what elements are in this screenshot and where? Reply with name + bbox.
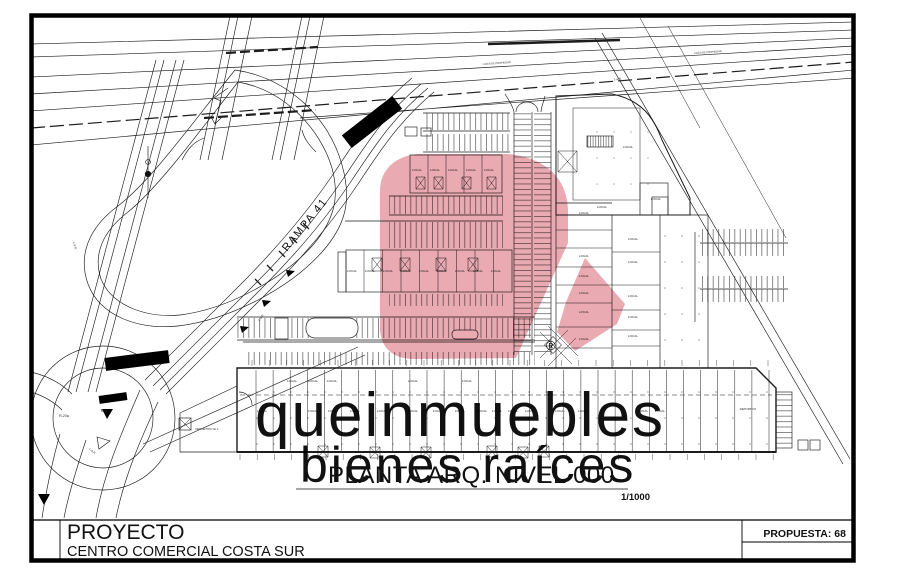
unit-labels-item: LOCAL bbox=[628, 334, 638, 338]
ramp-41-label: RAMPA 41 bbox=[280, 196, 330, 254]
project-name: CENTRO COMERCIAL COSTA SUR bbox=[67, 544, 305, 560]
unit-labels-item: LOCAL bbox=[365, 269, 375, 273]
drawing-title-group: PLANTA ARQ. NIVEL 000 1/1000 bbox=[296, 462, 650, 503]
site-plan-canvas: RAMPA 41 bbox=[0, 0, 900, 582]
watermark-registered-mark: ® bbox=[546, 338, 556, 353]
unit-labels-item: LOCAL bbox=[579, 211, 589, 215]
overpass-road bbox=[182, 16, 324, 160]
unit-labels-item: LOCAL bbox=[628, 260, 638, 264]
unit-labels-item: LOCAL bbox=[347, 269, 357, 273]
drawing-scale: 1/1000 bbox=[621, 492, 650, 503]
proposal-number: PROPUESTA: 68 bbox=[763, 528, 846, 540]
road-labels-item: L.a.R. bbox=[72, 241, 78, 250]
unit-labels-item: LOCAL bbox=[628, 294, 638, 298]
road-labels-item: R-2 bbox=[101, 408, 108, 413]
road-labels-item: L.a.R. bbox=[88, 447, 97, 455]
road-labels-item: R-20a bbox=[59, 414, 69, 418]
unit-labels-item: LOCAL bbox=[597, 205, 607, 209]
drawing-sheet: RAMPA 41 bbox=[0, 0, 900, 582]
street-symbols bbox=[145, 88, 228, 198]
unit-labels-item: LOCAL bbox=[628, 237, 638, 241]
project-label: PROYECTO bbox=[67, 521, 184, 544]
unit-labels-item: LOCAL bbox=[628, 315, 638, 319]
unit-labels-item: LOCAL bbox=[651, 197, 661, 201]
unit-labels-item: DEPORTIVO No.1 bbox=[195, 427, 219, 431]
unit-labels-item: LOCAL bbox=[623, 145, 633, 149]
unit-labels-item: DEPORTIVO bbox=[740, 407, 757, 411]
left-road bbox=[68, 60, 184, 392]
road-labels-item: LINEA DE PROPIEDAD bbox=[483, 60, 511, 66]
drawing-title: PLANTA ARQ. NIVEL 000 bbox=[328, 462, 615, 489]
title-block: PROYECTO CENTRO COMERCIAL COSTA SUR PROP… bbox=[67, 521, 846, 560]
unit-labels-item: LOCAL bbox=[579, 254, 589, 258]
watermark-logo-tail bbox=[557, 258, 625, 351]
road-labels-item: L.a.R. bbox=[614, 77, 622, 82]
